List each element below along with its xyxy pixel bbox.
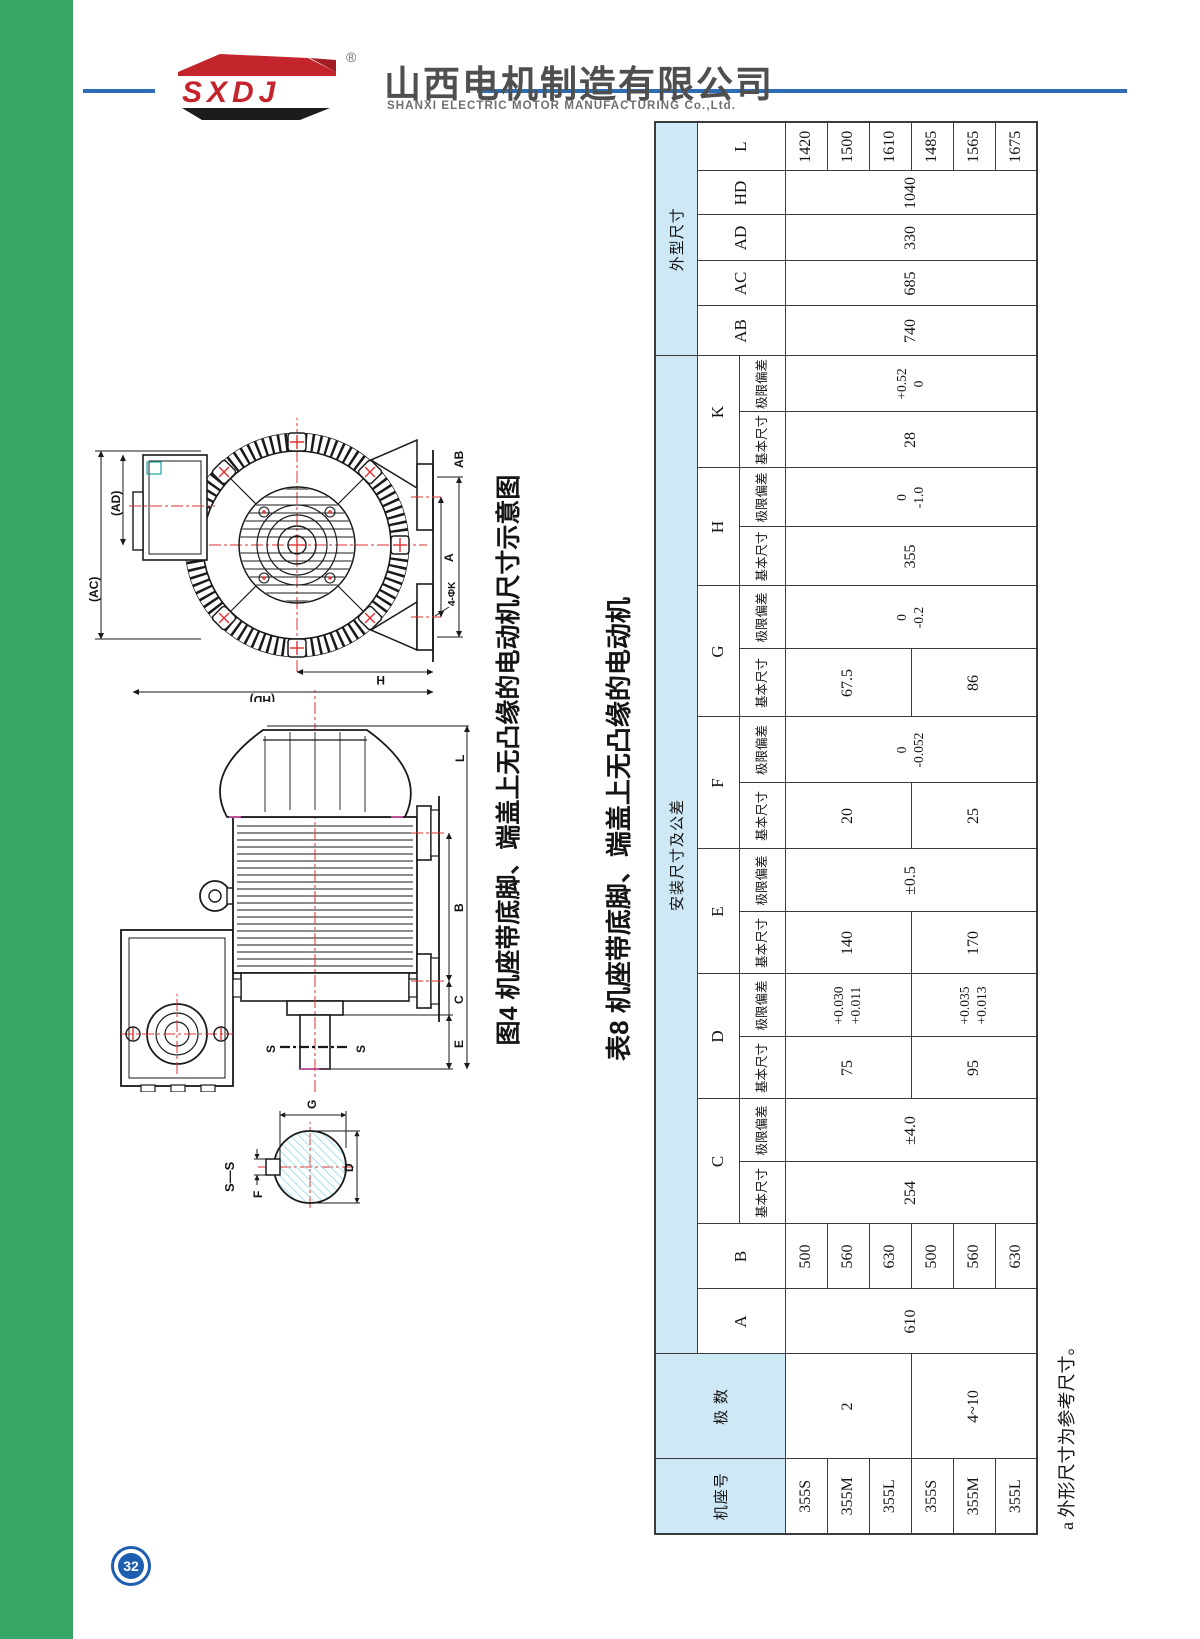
dimension-table: 机座号 极 数 安装尺寸及公差 外型尺寸 A B C D E F G H K A… bbox=[654, 121, 1038, 1535]
col-header-A: A bbox=[697, 1289, 785, 1354]
registered-mark: ® bbox=[346, 49, 356, 65]
col-header-AD: AD bbox=[697, 215, 785, 261]
catalog-page: SXDJ ® 山西电机制造有限公司 SHANXI ELECTRIC MOTOR … bbox=[0, 0, 1200, 1639]
col-header-frame: 机座号 bbox=[655, 1459, 785, 1534]
terminal-box-side-view bbox=[121, 930, 233, 1092]
page-number: 32 bbox=[118, 1553, 144, 1579]
sub-header-basic: 基本尺寸 bbox=[739, 1162, 785, 1224]
motor-side-view-drawing: S S E C B bbox=[115, 686, 470, 1092]
col-header-B: B bbox=[697, 1224, 785, 1289]
col-header-HD: HD bbox=[697, 171, 785, 215]
svg-text:H: H bbox=[376, 673, 385, 687]
svg-text:4-ΦK: 4-ΦK bbox=[447, 581, 458, 606]
shaft-section-drawing: S—S F G D bbox=[220, 1090, 365, 1210]
col-header-H: H bbox=[697, 468, 739, 586]
svg-text:B: B bbox=[452, 903, 466, 912]
group-header-outline: 外型尺寸 bbox=[655, 122, 697, 356]
col-header-F: F bbox=[697, 717, 739, 849]
svg-text:(AC): (AC) bbox=[87, 577, 101, 602]
svg-text:C: C bbox=[452, 995, 466, 1004]
svg-text:A: A bbox=[442, 553, 456, 562]
page-number-badge: 32 bbox=[111, 1546, 151, 1586]
col-header-D: D bbox=[697, 974, 739, 1099]
col-header-AB: AB bbox=[697, 306, 785, 356]
table-title: 表8 机座带底脚、端盖上无凸缘的电动机 bbox=[599, 123, 636, 1535]
svg-text:F: F bbox=[251, 1191, 265, 1198]
sub-header-limit: 极限偏差 bbox=[739, 1099, 785, 1162]
figure-caption: 图4 机座带底脚、端盖上无凸缘的电动机尺寸示意图 bbox=[489, 430, 525, 1090]
svg-text:G: G bbox=[305, 1100, 319, 1109]
svg-text:(AD): (AD) bbox=[109, 491, 123, 516]
svg-text:S: S bbox=[354, 1045, 368, 1053]
col-header-L: L bbox=[697, 122, 785, 171]
terminal-box-end-view bbox=[129, 455, 215, 560]
svg-text:AB: AB bbox=[452, 450, 466, 468]
green-edge-bar bbox=[0, 0, 73, 1639]
col-header-G: G bbox=[697, 586, 739, 717]
col-header-C: C bbox=[697, 1099, 739, 1224]
col-header-AC: AC bbox=[697, 261, 785, 306]
table-row: 355S 2 610 500 254 ±4.0 75 +0.030+0.011 … bbox=[785, 122, 827, 1534]
col-header-K: K bbox=[697, 356, 739, 468]
col-header-poles: 极 数 bbox=[655, 1354, 785, 1459]
svg-text:S: S bbox=[264, 1045, 278, 1053]
section-title: S—S bbox=[222, 1161, 237, 1192]
group-header-install: 安装尺寸及公差 bbox=[655, 356, 697, 1354]
table-footnote: a 外形尺寸为参考尺寸。 bbox=[1053, 1338, 1079, 1531]
svg-text:E: E bbox=[452, 1040, 466, 1048]
svg-text:D: D bbox=[342, 1163, 356, 1172]
motor-end-view-drawing: (AC) (AD) (HD) H A AB 4-ΦK bbox=[85, 412, 470, 702]
svg-text:L: L bbox=[453, 755, 467, 762]
col-header-E: E bbox=[697, 849, 739, 974]
rotated-landscape-content: (AC) (AD) (HD) H A AB 4-ΦK bbox=[85, 70, 1170, 1570]
